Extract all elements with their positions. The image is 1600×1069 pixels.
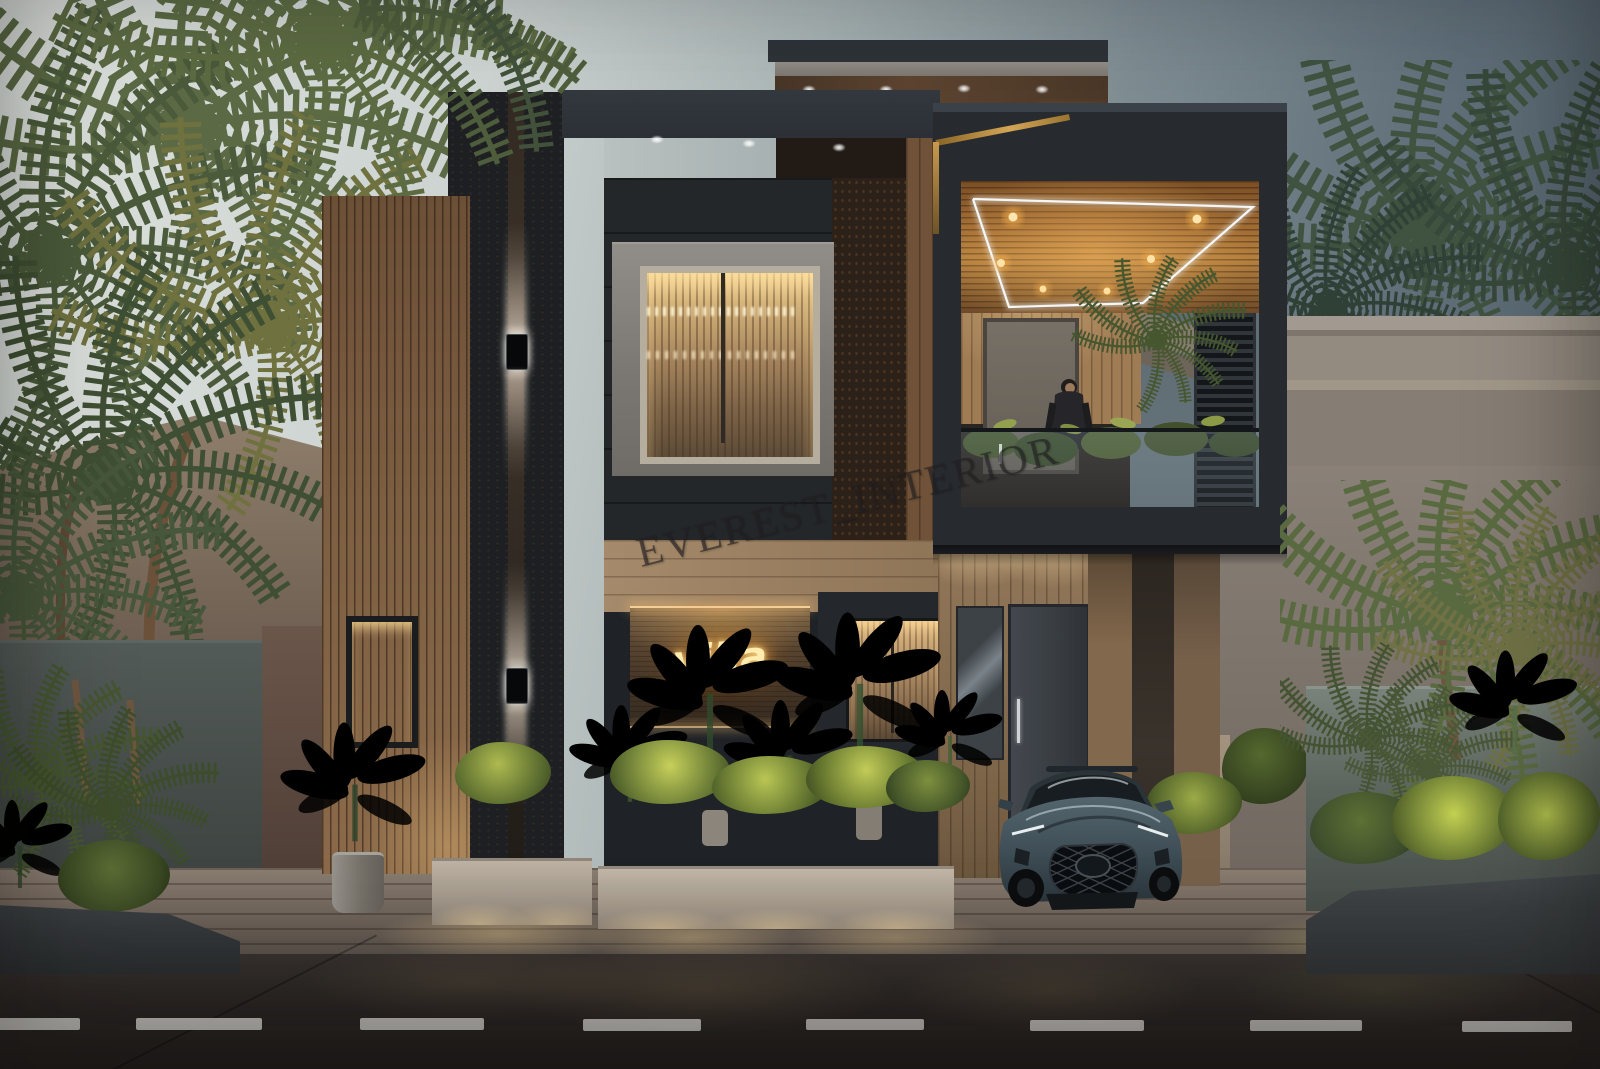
canopy-downlight	[1033, 84, 1051, 95]
lane-marking-dash	[136, 1018, 262, 1030]
window-mullion	[721, 273, 725, 443]
lane-marking-dash	[583, 1019, 701, 1031]
sconce-up-beam	[505, 562, 527, 666]
rear-canopy-fascia	[775, 62, 1108, 76]
rear-canopy-slab	[768, 40, 1108, 62]
canopy-downlight	[955, 83, 973, 94]
right-neighbor-cornice	[1242, 316, 1600, 466]
sconce-down-beam	[505, 372, 527, 480]
center-plants	[560, 590, 1020, 890]
potted-monstera	[270, 690, 440, 870]
lane-marking-dash	[806, 1019, 924, 1030]
wall-sconce	[506, 334, 528, 370]
balcony-brass-edge	[933, 142, 939, 234]
planter-left	[432, 858, 592, 925]
right-rear-leaves	[1270, 60, 1600, 360]
balcony-soffit-shadow	[933, 545, 1287, 565]
plant-pot-gray	[332, 852, 384, 913]
lane-marking-dash	[0, 1018, 80, 1030]
pergola-downlight	[830, 142, 848, 153]
suv-car	[986, 736, 1198, 922]
pergola-downlight	[648, 134, 666, 145]
wall-sconce	[506, 668, 528, 704]
tower-pergola-beam	[562, 90, 940, 138]
plant-pot	[702, 810, 728, 846]
upper-window	[640, 266, 820, 464]
sconce-up-beam	[505, 222, 527, 334]
villa-render-scene: villa	[0, 0, 1600, 1069]
ceiling-downlights	[992, 207, 1207, 299]
overhanging-fronds	[330, 0, 590, 190]
pergola-downlight	[740, 138, 758, 149]
planter-center	[598, 866, 954, 929]
lane-marking-dash	[1462, 1021, 1572, 1032]
lane-marking-dash	[360, 1018, 484, 1030]
lane-marking-dash	[1250, 1020, 1362, 1031]
lane-marking-dash	[1030, 1020, 1144, 1031]
